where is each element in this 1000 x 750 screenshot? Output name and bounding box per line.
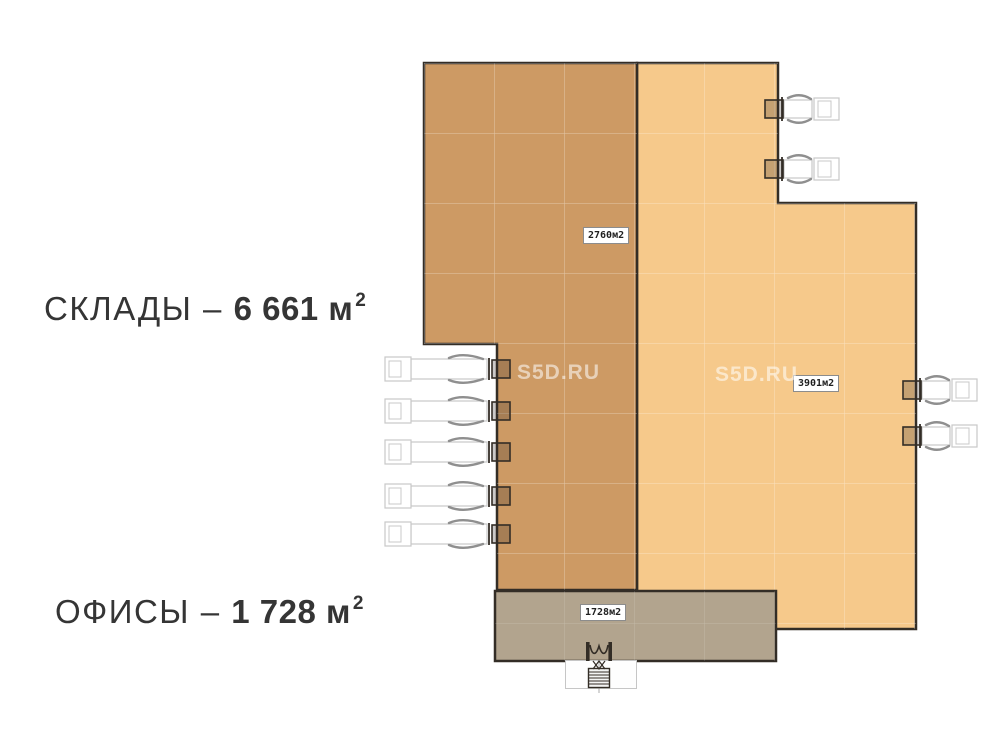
loading-dock-truck	[903, 422, 977, 450]
warehouses-legend: СКЛАДЫ – 6 661 м2	[44, 290, 365, 328]
area-size-tag-office: 1728м2	[580, 604, 626, 621]
stairs-icon	[566, 660, 637, 693]
loading-dock-truck	[903, 376, 977, 404]
area-size-tag-warehouse-dark: 2760м2	[583, 227, 629, 244]
floor-plan-drawing	[0, 0, 1000, 750]
watermark: S5D.RU	[517, 361, 600, 385]
offices-legend-sup: 2	[353, 593, 365, 614]
office-grid	[495, 591, 776, 661]
loading-dock-truck	[385, 482, 510, 510]
loading-dock-truck	[765, 95, 839, 123]
warehouse-light-grid	[637, 63, 916, 629]
loading-dock-truck	[385, 355, 510, 383]
area-size-tag-warehouse-light: 3901м2	[793, 375, 839, 392]
loading-dock-truck	[765, 155, 839, 183]
offices-legend-prefix: ОФИСЫ –	[55, 593, 231, 630]
floor-plan-page: 2760м2 3901м2 1728м2 S5D.RU S5D.RU СКЛАД…	[0, 0, 1000, 750]
warehouses-legend-sup: 2	[355, 290, 367, 311]
warehouse-dark-grid	[424, 63, 637, 590]
warehouses-legend-prefix: СКЛАДЫ –	[44, 290, 234, 327]
loading-dock-truck	[385, 438, 510, 466]
loading-dock-truck	[385, 397, 510, 425]
offices-legend: ОФИСЫ – 1 728 м2	[55, 593, 363, 631]
loading-dock-truck	[385, 520, 510, 548]
warehouses-legend-value: 6 661 м	[234, 290, 354, 327]
offices-legend-value: 1 728 м	[231, 593, 351, 630]
watermark: S5D.RU	[715, 363, 798, 387]
